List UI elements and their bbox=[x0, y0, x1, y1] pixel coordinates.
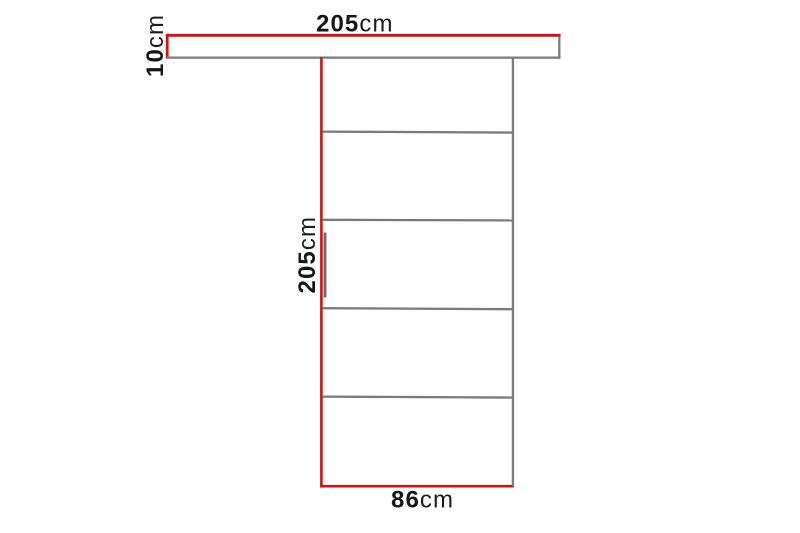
svg-text:10cm: 10cm bbox=[142, 14, 169, 77]
svg-text:86cm: 86cm bbox=[391, 487, 454, 514]
svg-text:205cm: 205cm bbox=[316, 10, 394, 37]
svg-text:205cm: 205cm bbox=[294, 216, 321, 294]
